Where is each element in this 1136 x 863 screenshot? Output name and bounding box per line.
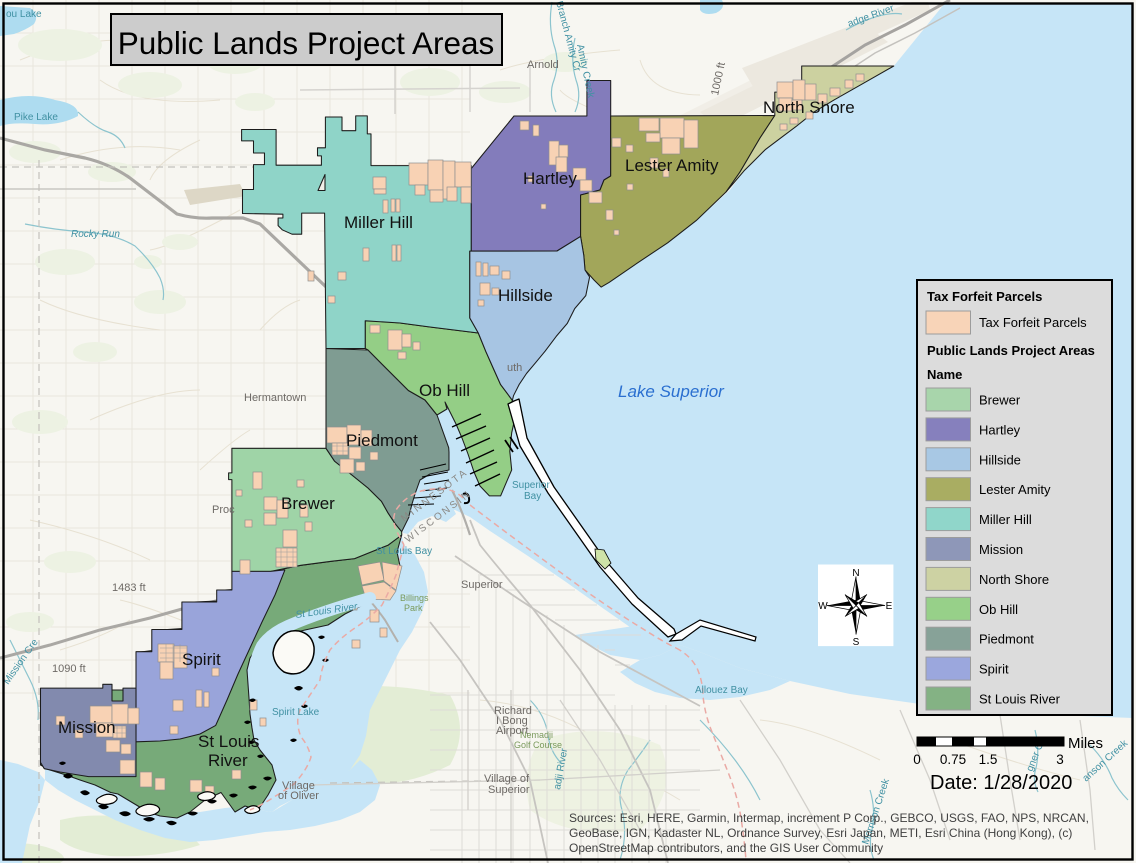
svg-text:Tax Forfeit Parcels: Tax Forfeit Parcels: [927, 289, 1042, 304]
svg-text:Public Lands Project Areas: Public Lands Project Areas: [927, 343, 1095, 358]
svg-text:St Louis: St Louis: [198, 732, 259, 751]
svg-text:Date: 1/28/2020: Date: 1/28/2020: [930, 772, 1072, 794]
svg-text:Hartley: Hartley: [979, 422, 1021, 437]
svg-text:Spirit: Spirit: [182, 650, 221, 669]
svg-text:W: W: [818, 601, 828, 612]
svg-text:Piedmont: Piedmont: [346, 431, 418, 450]
svg-text:Public Lands Project Areas: Public Lands Project Areas: [118, 25, 494, 61]
svg-text:Hillside: Hillside: [498, 286, 553, 305]
svg-text:N: N: [852, 568, 859, 579]
svg-text:Hillside: Hillside: [979, 452, 1021, 467]
svg-text:Superior: Superior: [488, 784, 530, 796]
svg-text:ou Lake: ou Lake: [6, 9, 42, 20]
svg-text:Pike Lake: Pike Lake: [14, 112, 58, 123]
svg-text:Superior: Superior: [512, 480, 550, 491]
svg-text:Tax Forfeit Parcels: Tax Forfeit Parcels: [979, 315, 1087, 330]
svg-text:Park: Park: [404, 603, 423, 613]
svg-text:E: E: [886, 601, 893, 612]
svg-text:1.5: 1.5: [979, 752, 998, 767]
svg-text:Brewer: Brewer: [281, 494, 335, 513]
svg-text:Brewer: Brewer: [979, 393, 1021, 408]
svg-text:Rocky Run: Rocky Run: [71, 229, 120, 240]
svg-text:Miller Hill: Miller Hill: [344, 213, 413, 232]
svg-text:Sources: Esri, HERE, Garmin, I: Sources: Esri, HERE, Garmin, Intermap, i…: [569, 811, 1089, 825]
svg-text:Miles: Miles: [1068, 735, 1103, 752]
svg-text:Arnold: Arnold: [527, 59, 559, 71]
svg-text:of Oliver: of Oliver: [278, 790, 319, 802]
svg-text:Name: Name: [927, 367, 962, 382]
svg-text:Proc: Proc: [212, 504, 235, 516]
svg-text:Ob Hill: Ob Hill: [419, 381, 470, 400]
svg-text:uth: uth: [507, 362, 522, 374]
svg-text:Billings: Billings: [400, 593, 429, 603]
svg-text:Nemadji: Nemadji: [520, 730, 553, 740]
svg-text:St Louis River: St Louis River: [979, 692, 1061, 707]
svg-text:Hermantown: Hermantown: [244, 392, 306, 404]
svg-text:3: 3: [1056, 752, 1064, 767]
svg-text:Spirit Lake: Spirit Lake: [272, 707, 320, 718]
svg-text:Spirit: Spirit: [979, 662, 1009, 677]
svg-text:1483 ft: 1483 ft: [112, 582, 146, 594]
svg-text:Bay: Bay: [524, 491, 541, 502]
svg-text:OpenStreetMap contributors, an: OpenStreetMap contributors, and the GIS …: [569, 841, 883, 855]
svg-text:Golf Course: Golf Course: [514, 740, 562, 750]
svg-text:Piedmont: Piedmont: [979, 632, 1034, 647]
svg-text:Lake Superior: Lake Superior: [618, 382, 725, 401]
svg-text:1090 ft: 1090 ft: [52, 663, 86, 675]
svg-text:Ob Hill: Ob Hill: [979, 602, 1018, 617]
svg-text:Lester Amity: Lester Amity: [979, 482, 1051, 497]
svg-text:S: S: [853, 637, 860, 648]
svg-text:0: 0: [913, 752, 921, 767]
svg-text:Mission: Mission: [58, 718, 116, 737]
svg-text:Mission: Mission: [979, 542, 1023, 557]
svg-text:0.75: 0.75: [940, 752, 966, 767]
svg-text:Miller Hill: Miller Hill: [979, 512, 1032, 527]
svg-text:Superior: Superior: [461, 579, 503, 591]
svg-text:GeoBase, IGN, Kadaster NL, Ord: GeoBase, IGN, Kadaster NL, Ordnance Surv…: [569, 826, 1072, 840]
svg-text:Allouez Bay: Allouez Bay: [695, 685, 748, 696]
svg-text:Lester Amity: Lester Amity: [625, 156, 719, 175]
svg-text:North Shore: North Shore: [763, 98, 855, 117]
svg-text:River: River: [208, 751, 248, 770]
svg-text:North Shore: North Shore: [979, 572, 1049, 587]
svg-text:St Louis Bay: St Louis Bay: [376, 546, 432, 557]
svg-text:Hartley: Hartley: [523, 169, 577, 188]
